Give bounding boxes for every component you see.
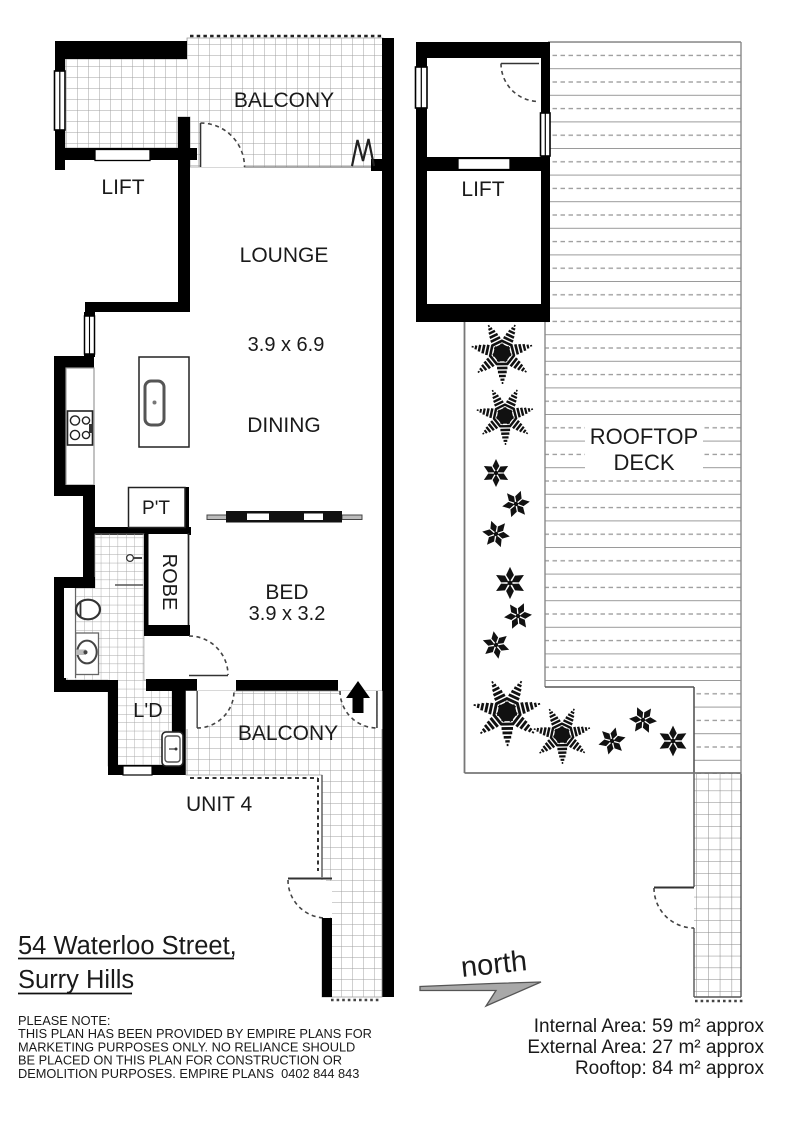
svg-text:Internal Area: 59 m² approx: Internal Area: 59 m² approx [534,1016,765,1037]
svg-text:LIFT: LIFT [461,178,504,201]
svg-text:3.9 x 6.9: 3.9 x 6.9 [248,334,325,356]
svg-text:BED: BED [265,581,308,604]
svg-text:BALCONY: BALCONY [234,89,334,112]
svg-text:UNIT 4: UNIT 4 [186,793,252,816]
svg-text:LIFT: LIFT [101,176,144,199]
svg-text:Rooftop: 84 m² approx: Rooftop: 84 m² approx [575,1058,765,1079]
svg-text:54 Waterloo Street,: 54 Waterloo Street, [18,932,237,960]
svg-text:BALCONY: BALCONY [238,722,338,745]
svg-text:DECK: DECK [613,450,674,475]
svg-text:External Area: 27 m² approx: External Area: 27 m² approx [527,1037,764,1058]
svg-text:ROOFTOP: ROOFTOP [590,424,698,449]
svg-text:DINING: DINING [247,414,321,437]
svg-text:DEMOLITION PURPOSES. EMPIRE PL: DEMOLITION PURPOSES. EMPIRE PLANS 0402 8… [18,1066,359,1081]
svg-text:3.9 x 3.2: 3.9 x 3.2 [249,603,326,625]
svg-text:L'D: L'D [133,700,162,722]
svg-text:north: north [459,945,528,984]
svg-text:P'T: P'T [142,498,170,519]
svg-text:Surry Hills: Surry Hills [18,966,134,994]
svg-text:LOUNGE: LOUNGE [240,244,329,267]
svg-text:ROBE: ROBE [158,554,180,611]
